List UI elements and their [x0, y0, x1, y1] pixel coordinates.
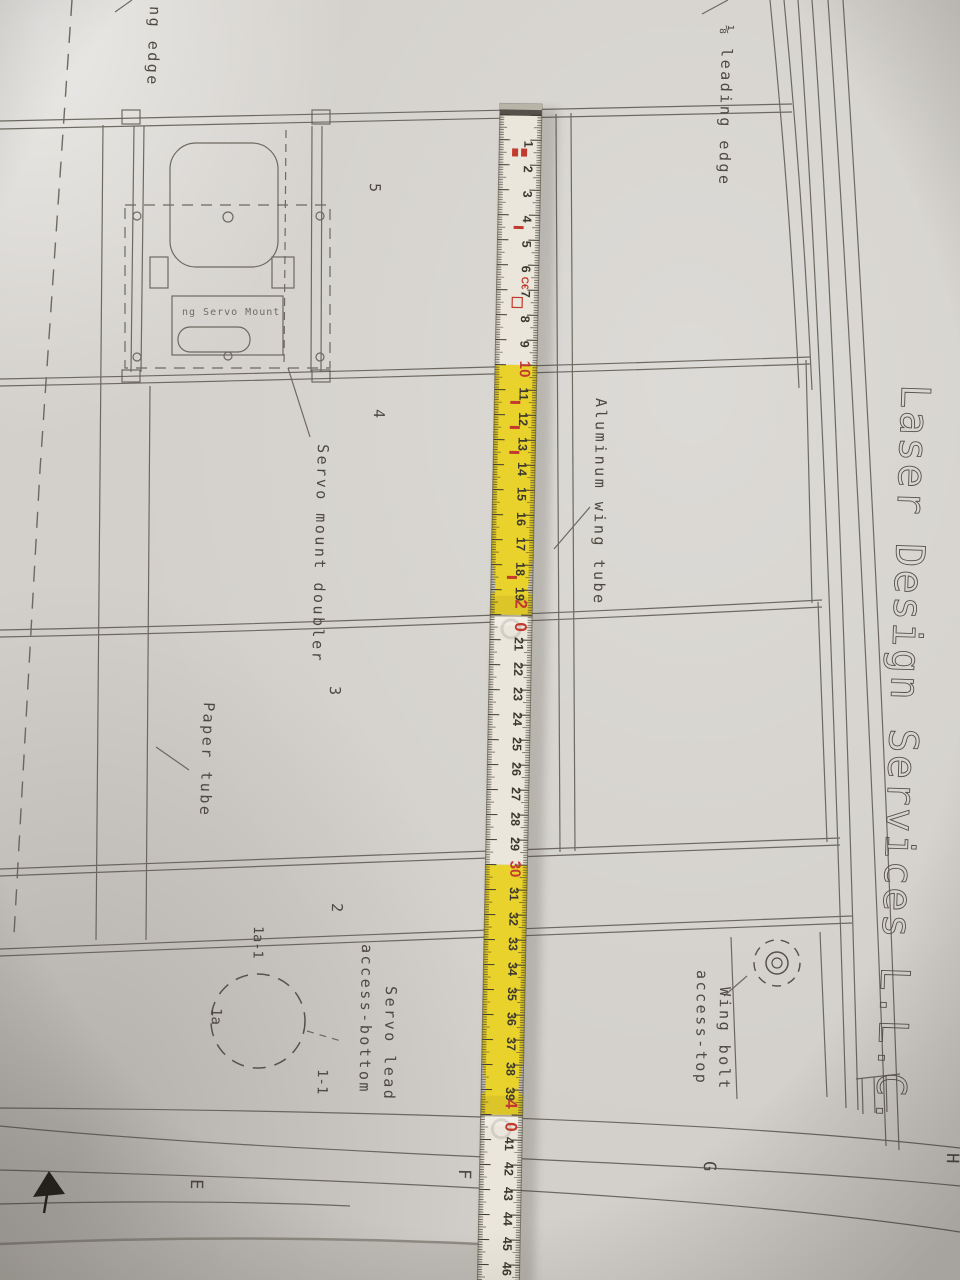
wing-plan-photo: ng Servo Mount ⅛ leading edge ng edge Se… [0, 0, 960, 1280]
photo-canvas: ng Servo Mount ⅛ leading edge ng edge Se… [0, 0, 960, 1280]
photo-vignette [0, 0, 960, 1280]
